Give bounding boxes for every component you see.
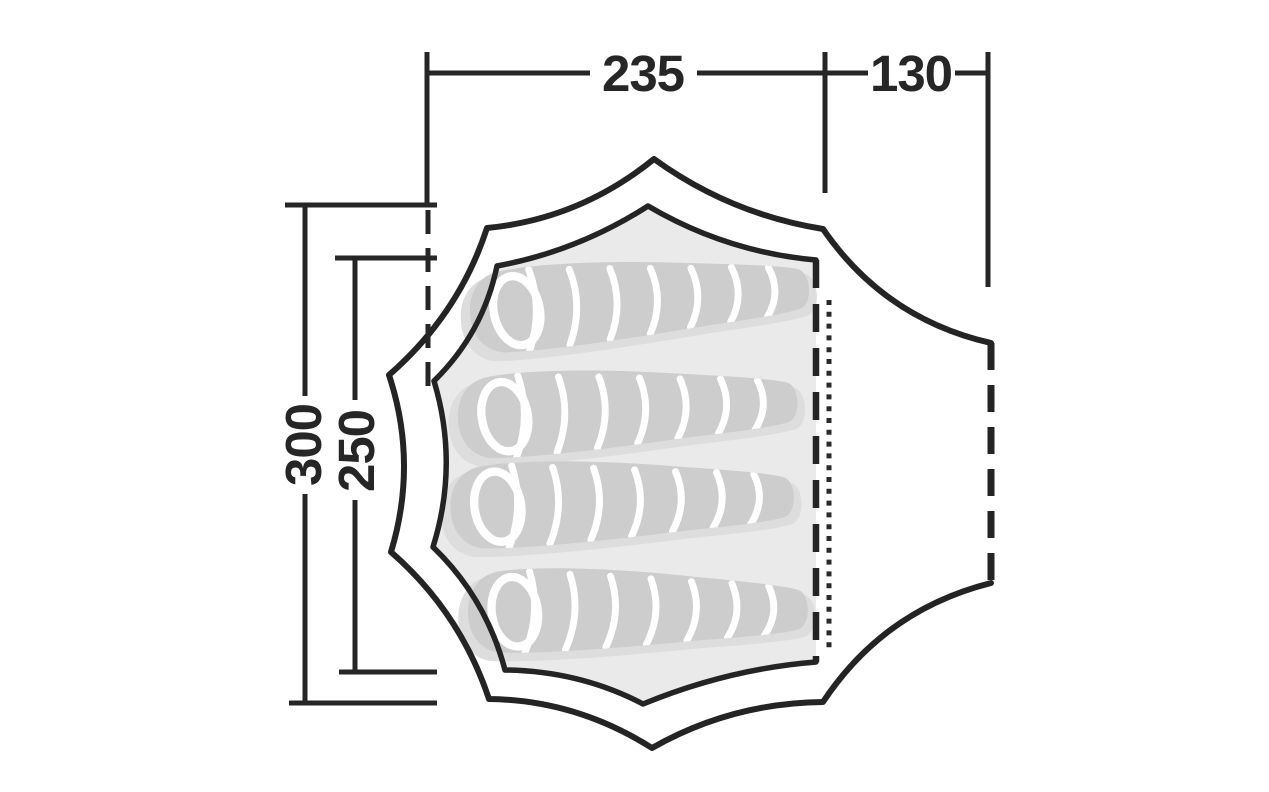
- tent-floorplan-diagram: 235 130 300 250: [0, 0, 1269, 792]
- dimension-porch-depth: 130: [825, 45, 988, 287]
- dim-250-label: 250: [328, 410, 385, 492]
- dim-130-label: 130: [870, 45, 952, 102]
- tent-diagram-svg: 235 130 300 250: [0, 0, 1269, 792]
- dim-235-label: 235: [602, 45, 684, 102]
- dim-300-label: 300: [275, 404, 332, 486]
